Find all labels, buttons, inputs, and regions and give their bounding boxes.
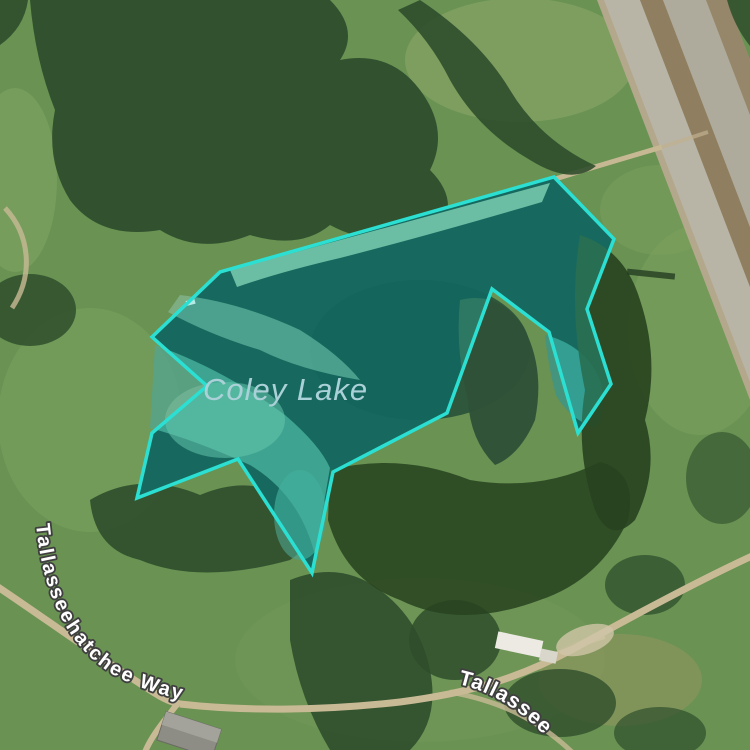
- lake-name-label: Coley Lake: [203, 372, 368, 407]
- satellite-map[interactable]: Coley Lake Tallasseehatchee Way Tallasse…: [0, 0, 750, 750]
- map-canvas: Coley Lake Tallasseehatchee Way Tallasse…: [0, 0, 750, 750]
